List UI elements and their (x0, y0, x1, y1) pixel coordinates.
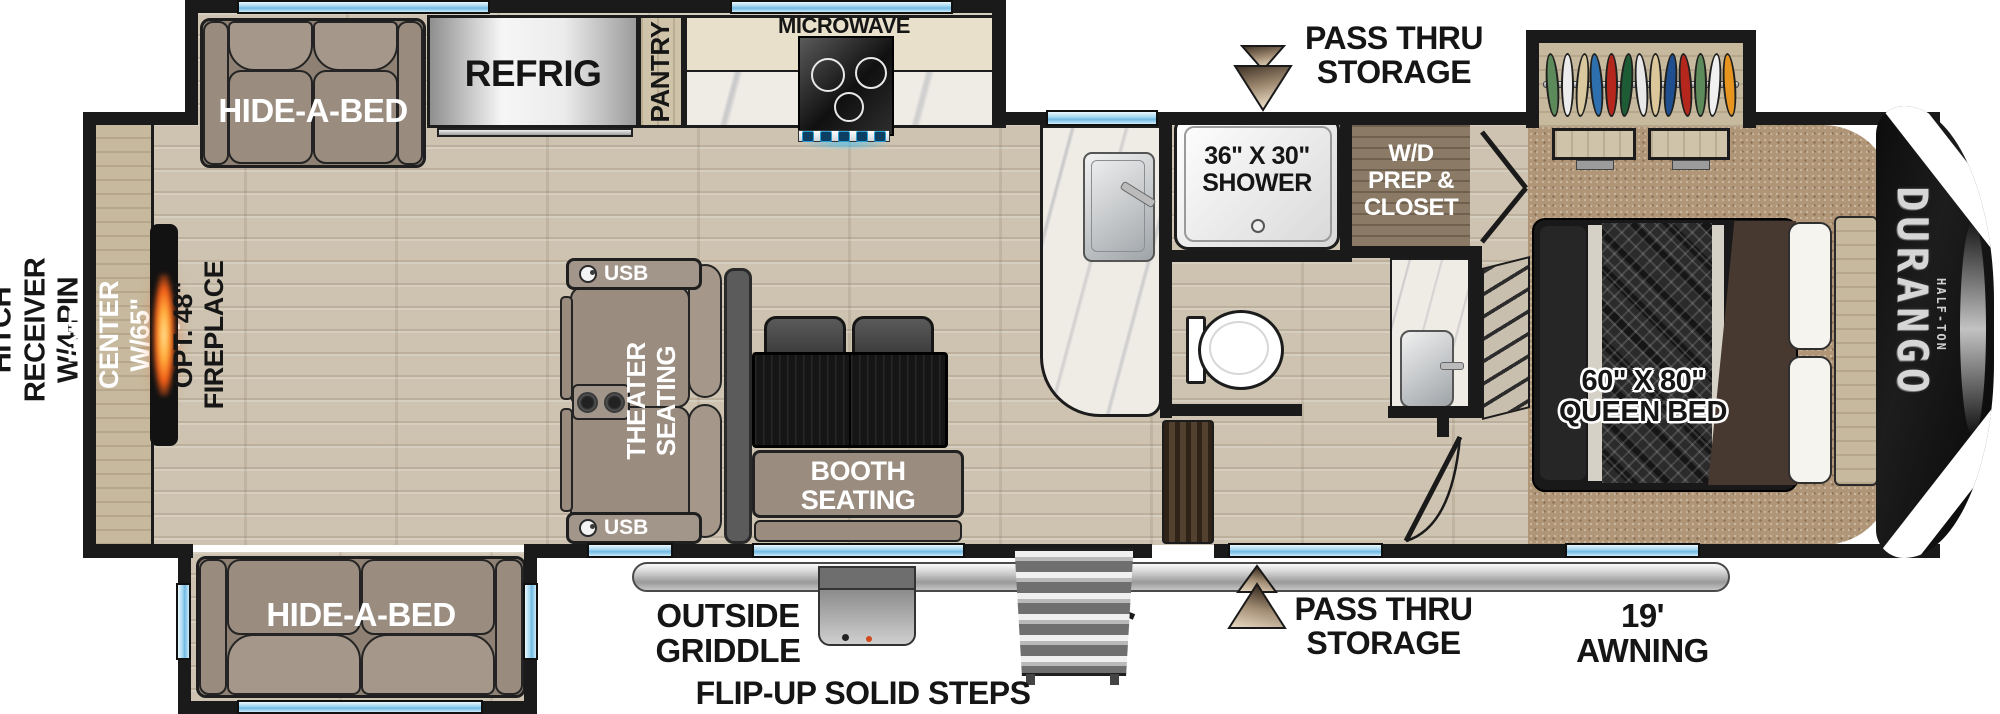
window (237, 700, 483, 714)
griddle-knob (866, 636, 872, 642)
wall (1470, 246, 1482, 418)
nightstand (1648, 128, 1730, 160)
cooktop (798, 36, 894, 136)
usb-armrest-top: USB (566, 258, 702, 290)
clothes-item (1632, 53, 1649, 118)
nightstand-leg (1576, 160, 1614, 170)
usb-armrest-bottom: USB (566, 512, 702, 544)
clothes-item (1677, 53, 1694, 118)
window (752, 543, 965, 558)
pass-thru-storage-label-bottom: PASS THRU STORAGE (1276, 593, 1491, 661)
shower-label: 36" X 30" SHOWER (1177, 143, 1337, 196)
clothes-item (1706, 53, 1723, 118)
flip-up-steps-label: FLIP-UP SOLID STEPS (688, 677, 1038, 711)
booth-bench-lip (754, 520, 962, 542)
pantry-label: PANTRY (646, 22, 676, 123)
flip-up-steps (1012, 548, 1136, 676)
hide-a-bed-sofa-bottom: HIDE-A-BED (196, 556, 526, 704)
wall (185, 0, 198, 125)
sofa-back-cushion (228, 21, 313, 71)
wall (1526, 30, 1539, 128)
queen-bed: 60" X 80" QUEEN BED (1532, 218, 1794, 490)
shower: 36" X 30" SHOWER (1174, 116, 1340, 250)
refrigerator: REFRIG (427, 15, 639, 128)
bed-foot-bench (1540, 226, 1586, 480)
cap-chrome-shine (1960, 222, 1986, 436)
wall (992, 0, 1006, 125)
cooktop-knobs (798, 130, 890, 142)
knob (802, 131, 814, 142)
cupholder (577, 392, 598, 413)
microwave-label: MICROWAVE (778, 14, 908, 37)
bath-vanity (1390, 258, 1470, 408)
brand-name: DURANGO (1888, 186, 1937, 398)
awning-roller (632, 562, 1730, 592)
burner (855, 57, 887, 89)
wall (1340, 112, 1352, 262)
hide-a-bed-label-bottom: HIDE-A-BED (196, 598, 526, 633)
step-leg (1110, 674, 1119, 685)
pass-thru-storage-label-top: PASS THRU STORAGE (1290, 22, 1498, 90)
closet-clothes (1543, 49, 1739, 121)
usb-label-top: USB (604, 262, 648, 286)
bath-faucet (1440, 362, 1464, 370)
booth-seating-label: BOOTH SEATING (755, 457, 961, 514)
fireplace-label: OPT. 48" FIREPLACE (168, 261, 230, 410)
booth-table (752, 352, 948, 448)
sofa-back-cushion (227, 634, 361, 695)
clothes-item (1544, 53, 1561, 118)
theater-seating-label: THEATER SEATING (622, 342, 682, 459)
window (587, 543, 673, 558)
entry-step-mat (1162, 420, 1214, 544)
window (730, 0, 953, 14)
pillow (1788, 222, 1832, 350)
window (1565, 543, 1700, 558)
awning-label: 19' AWNING (1570, 599, 1715, 669)
wall (1160, 404, 1302, 416)
clothes-item (1721, 53, 1738, 118)
pillow (1788, 356, 1832, 484)
clothes-item (1588, 53, 1605, 118)
knob (856, 131, 868, 142)
wall (83, 112, 96, 558)
wall (83, 112, 193, 125)
hide-a-bed-sofa-top: HIDE-A-BED (200, 18, 426, 174)
wall (1743, 30, 1756, 128)
toilet (1198, 310, 1284, 390)
knob (874, 131, 886, 142)
usb-icon (579, 519, 597, 537)
theater-footrest (560, 296, 573, 400)
clothes-item (1649, 53, 1662, 117)
wall (1160, 112, 1172, 418)
wall (1381, 544, 1567, 558)
usb-label-bottom: USB (604, 516, 648, 540)
sofa-back-cushion (361, 634, 495, 695)
bedroom-steps (1482, 256, 1530, 420)
clothes-item (1694, 53, 1707, 117)
outside-griddle-label: OUTSIDE GRIDDLE (643, 599, 813, 669)
wall (1172, 250, 1352, 262)
wall (1388, 406, 1482, 418)
table-seam (849, 355, 851, 445)
wall (1437, 415, 1449, 437)
burner (834, 92, 864, 122)
knob (838, 131, 850, 142)
booth-bench: BOOTH SEATING (752, 450, 964, 518)
refrigerator-vent (437, 128, 633, 137)
clothes-item (1573, 53, 1590, 118)
pass-thru-arrow-down-icon (1232, 44, 1294, 114)
nightstand (1552, 128, 1636, 160)
booth-dinette: BOOTH SEATING (752, 316, 964, 548)
queen-bed-label: 60" X 80" QUEEN BED (1538, 366, 1748, 427)
window (1046, 110, 1158, 126)
kitchen-sink (1083, 152, 1155, 262)
knob (820, 131, 832, 142)
griddle-knob (842, 634, 849, 641)
outside-griddle (818, 566, 916, 646)
window (1228, 543, 1383, 558)
window (237, 0, 490, 14)
window (176, 583, 191, 660)
headboard (1834, 216, 1878, 486)
hide-a-bed-label-top: HIDE-A-BED (200, 94, 426, 129)
wd-prep-closet: W/D PREP & CLOSET (1352, 125, 1470, 248)
front-cap: DURANGO HALF-TON (1876, 106, 1994, 558)
theater-footrest (560, 408, 573, 512)
clothes-item (1618, 53, 1635, 118)
rv-floorplan: STD. HITCH RECEIVER W/4-PIN HARNESS ENT.… (0, 0, 2000, 714)
burner (811, 58, 845, 92)
wall (1526, 30, 1756, 43)
sofa-back-cushion (313, 21, 398, 71)
clothes-item (1605, 53, 1618, 117)
sink-counter (1040, 125, 1162, 417)
bed-plaid-runner (1602, 223, 1712, 483)
bed-sheet-stripe (1588, 225, 1602, 481)
brand-model: HALF-TON (1934, 278, 1948, 352)
clothes-item (1662, 53, 1679, 118)
clothes-item (1561, 53, 1574, 117)
wall (1352, 246, 1482, 258)
toilet-bowl (1209, 321, 1269, 375)
usb-icon (579, 265, 597, 283)
wall (671, 544, 754, 558)
sink-basin (1091, 160, 1145, 252)
refrig-label: REFRIG (430, 54, 636, 93)
sofa-table (724, 268, 752, 544)
wall (83, 544, 193, 558)
nightstand-leg (1672, 160, 1710, 170)
shower-drain (1251, 219, 1265, 233)
window (523, 583, 538, 660)
wd-closet-label: W/D PREP & CLOSET (1352, 141, 1470, 222)
